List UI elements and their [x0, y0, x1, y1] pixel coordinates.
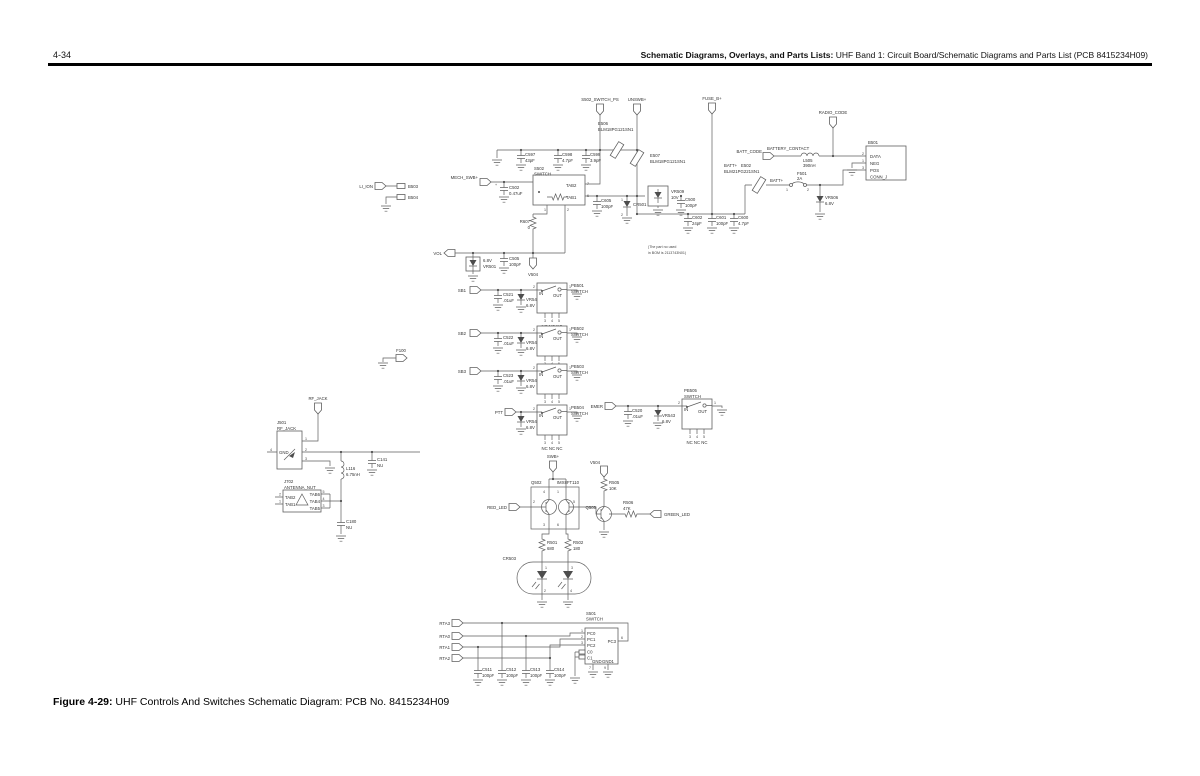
ground-symbol — [493, 348, 503, 353]
label-j702-tab1: TAB1 — [285, 502, 296, 507]
ground-symbol — [497, 680, 507, 685]
label-j702-val: ANTENNA_NUT — [284, 485, 316, 490]
label-c600-ref: C600 — [738, 215, 749, 220]
resistor-r501 — [539, 536, 545, 556]
label-r502-ref: R502 — [573, 540, 584, 545]
rf-jack-section: RF_JACK J501 RF_JACK GND 1 2 3 4 L116 6.… — [267, 396, 420, 541]
pin-5: 5 — [573, 500, 575, 504]
label-vr540-val: 6.8V — [526, 303, 535, 308]
figure-caption: Figure 4-29: UHF Controls And Switches S… — [53, 696, 449, 708]
label-j501-gnd: GND — [279, 450, 289, 455]
label-pb502-sw: SWITCH — [571, 332, 588, 337]
diode-cr501 — [624, 201, 631, 207]
pin-4: 4 — [570, 589, 572, 593]
label-q502-val: IMX8FT110 — [557, 480, 580, 485]
ground-symbol — [603, 672, 613, 677]
capacitor-c180 — [337, 518, 345, 530]
label-l116-val: 6.75nH — [346, 472, 360, 477]
ground-symbol — [499, 197, 509, 202]
zener-vr544 — [517, 413, 525, 427]
jumper-c0 — [579, 650, 585, 654]
note-line1: (The part no used — [648, 245, 676, 249]
ferrite-e502 — [752, 177, 766, 194]
port-flag-sb3 — [470, 368, 481, 375]
label-e502-val: BLM21PG221SN1 — [724, 169, 760, 174]
ground-symbol — [545, 680, 555, 685]
ground-symbol — [516, 350, 526, 355]
pin-3: 3 — [689, 435, 691, 439]
label-li-ion: LI_ION — [359, 184, 373, 189]
port-flag-sb2 — [470, 330, 481, 337]
ground-symbol — [336, 536, 346, 541]
port-flag-rta1 — [452, 644, 463, 651]
label-c602-val: 24pF — [692, 221, 702, 226]
s501-section: RTA3 RTA0 RTA1 RTA2 S501 SWITCH PC0 PC1 … — [439, 611, 628, 685]
zener-vr543 — [654, 407, 662, 421]
label-in: IN — [539, 413, 543, 418]
pin-2: 2 — [279, 493, 281, 497]
label-j702-tab2: TAB2 — [285, 495, 296, 500]
label-v504-led: V504 — [590, 460, 601, 465]
label-pb501-ref: PB501 — [571, 283, 585, 288]
zener-vr542 — [517, 372, 525, 386]
ground-symbol — [707, 228, 717, 233]
pin-7: 7 — [587, 182, 589, 186]
fuse-pin — [804, 184, 807, 187]
pin-2: 2 — [678, 401, 680, 405]
capacitor-c141 — [368, 456, 376, 468]
ground-symbol — [492, 160, 502, 165]
label-vr509-val: 10V — [671, 195, 679, 200]
port-flag-f100 — [396, 355, 407, 362]
port-flag-vol — [444, 250, 455, 257]
capacitor-c602 — [684, 214, 692, 226]
label-pb503-sw: SWITCH — [571, 370, 588, 375]
pin-2: 2 — [862, 152, 864, 156]
pin-1: 1 — [714, 401, 716, 405]
label-c505-ref: C505 — [509, 256, 520, 261]
ground-symbol — [516, 307, 526, 312]
resistor-r506 — [620, 511, 640, 517]
label-vr501-ref: VR501 — [483, 264, 497, 269]
port-flag-red-led — [509, 504, 520, 511]
label-f100: F100 — [396, 348, 406, 353]
label-rta3: RTA3 — [439, 621, 450, 626]
pin-5: 5 — [323, 490, 325, 494]
label-b501-neg: NEG — [870, 161, 880, 166]
label-s502-switch-ps: S502_SWITCH_PS — [581, 97, 619, 102]
capacitor-c521 — [494, 291, 502, 303]
label-r501-ref: R501 — [547, 540, 558, 545]
capacitor-c601 — [708, 214, 716, 226]
ground-symbol — [653, 210, 663, 215]
label-s501-gnd: GND — [592, 659, 602, 664]
label-pb504-ref: PB504 — [571, 405, 585, 410]
label-c597-val: 43pF — [525, 158, 535, 163]
port-flag-li-ion — [375, 183, 386, 190]
label-b501-data: DATA — [870, 154, 881, 159]
label-green-led: GREEN_LED — [664, 512, 690, 517]
label-rta0: RTA0 — [439, 634, 450, 639]
switch-pb505 — [682, 399, 712, 434]
label-j702-tab6: TAB6 — [310, 492, 321, 497]
pin-7: 7 — [589, 666, 591, 670]
label-pc2: PC2 — [587, 643, 596, 648]
label-e506-val: BLM18PG121SN1 — [598, 127, 634, 132]
switch-pb501 — [537, 283, 567, 318]
pin-3: 3 — [571, 566, 573, 570]
label-r505-val: 10K — [609, 486, 617, 491]
label-e507-val: BLM18PG121SN1 — [650, 159, 686, 164]
switch-pb503 — [537, 364, 567, 399]
inductor-l116 — [341, 461, 344, 479]
label-vol: VOL — [433, 251, 442, 256]
wires-f100 — [383, 358, 396, 362]
ground-symbol — [493, 386, 503, 391]
pin-1: 1 — [305, 437, 307, 441]
label-b501-connj: CONN_J — [870, 175, 887, 180]
label-sb3: SB3 — [458, 369, 467, 374]
label-c512-val: 100pF — [506, 673, 519, 678]
label-vr542-val: 6.8V — [526, 384, 535, 389]
label-c500-val: 100pF — [685, 203, 698, 208]
pin-3: 3 — [305, 457, 307, 461]
ground-symbol — [563, 602, 573, 607]
label-l505-val: 390nH — [803, 163, 816, 168]
label-tab2: TAB2 — [566, 183, 577, 188]
capacitor-c520 — [624, 407, 632, 419]
label-pb505-ref: PB505 — [684, 388, 698, 393]
label-r502-val: 180 — [573, 546, 581, 551]
label-f501-val: 2A — [797, 176, 802, 181]
label-c514-val: 100pF — [554, 673, 567, 678]
label-j501-val: RF_JACK — [277, 426, 296, 431]
wires — [520, 472, 650, 562]
pin-4: 4 — [323, 497, 325, 501]
label-vr506-val: 6.8V — [825, 201, 834, 206]
label-pc0: PC0 — [587, 631, 596, 636]
ground-symbol — [572, 294, 582, 299]
label-emer: EMER — [591, 404, 603, 409]
label-c505-val: 100pF — [509, 262, 522, 267]
label-b501: B501 — [868, 140, 879, 145]
label-c605-ref: C605 — [601, 198, 612, 203]
switch-pb502 — [537, 326, 567, 361]
label-q505: Q505 — [585, 505, 596, 510]
pin-2: 2 — [533, 366, 535, 370]
label-pb501-sw: SWITCH — [571, 289, 588, 294]
pin-4: 4 — [543, 490, 545, 494]
label-s501-gnd1: GND1 — [602, 659, 615, 664]
ground-symbol — [521, 680, 531, 685]
capacitor-c600 — [730, 214, 738, 226]
pin-2: 2 — [621, 213, 623, 217]
pin-2: 2 — [807, 188, 809, 192]
label-in: IN — [539, 372, 543, 377]
port-flag-rta0 — [452, 633, 463, 640]
ground-symbol — [717, 410, 727, 415]
ground-symbol — [516, 388, 526, 393]
label-e507-ref: E507 — [650, 153, 661, 158]
ground-symbol — [367, 470, 377, 475]
label-c0: C0 — [587, 650, 593, 655]
ground-symbol — [378, 363, 388, 368]
label-in: IN — [684, 407, 688, 412]
label-s502-ref: S502 — [534, 166, 545, 171]
label-battery-contact: BATTERY_CONTACT — [767, 146, 810, 151]
ground-symbol — [676, 210, 686, 215]
label-out: OUT — [553, 374, 562, 379]
label-nc: NC NC NC — [541, 446, 562, 451]
label-swb: SWB+ — [547, 454, 560, 459]
resistor-r502 — [565, 536, 571, 556]
label-c520-val: .01uF — [632, 414, 643, 419]
label-c141-val: NU — [377, 463, 383, 468]
pin-1: 1 — [621, 198, 623, 202]
schematic-canvas: S502_SWITCH_PS UNSWB+ FUSE_B+ RADIO_CODE… — [0, 0, 1200, 776]
label-c523-ref: C523 — [503, 373, 514, 378]
port-flag-unswb — [634, 104, 641, 115]
label-c522-ref: C522 — [503, 335, 514, 340]
label-c141-ref: C141 — [377, 457, 388, 462]
port-flag-s502-switch-ps — [597, 104, 604, 115]
power-switch-section: LI_ION B503 B504 MECH_SWB+ + C502 0.47uF… — [359, 166, 589, 281]
port-flag-rf-jack — [315, 403, 322, 414]
label-pb502-ref: PB502 — [571, 326, 585, 331]
pin-2: 2 — [533, 407, 535, 411]
document-page: 4-34 Schematic Diagrams, Overlays, and P… — [0, 0, 1200, 776]
zener-vr506 — [816, 193, 824, 207]
label-c514-ref: C514 — [554, 667, 565, 672]
ground-symbol — [537, 602, 547, 607]
label-fuse-b: FUSE_B+ — [702, 96, 722, 101]
pin-5: 5 — [703, 435, 705, 439]
pin-1: 1 — [544, 208, 546, 212]
ground-symbol — [516, 429, 526, 434]
capacitor-c597 — [517, 151, 525, 163]
label-out: OUT — [553, 415, 562, 420]
label-s501-sw: SWITCH — [586, 617, 603, 622]
label-rf-jack-port: RF_JACK — [308, 396, 327, 401]
led-section: SWB+ Q502 IMX8FT110 4 1 2 5 3 6 RED_LED … — [487, 454, 690, 607]
capacitor-c599 — [582, 151, 590, 163]
pin-6: 6 — [587, 194, 589, 198]
ground-symbol — [381, 206, 391, 211]
label-unswb: UNSWB+ — [628, 97, 647, 102]
ground-symbol — [473, 680, 483, 685]
label-j702-ref: J702 — [284, 479, 294, 484]
port-flag-green-led — [650, 511, 661, 518]
label-c520-ref: C520 — [632, 408, 643, 413]
label-e506-ref: E506 — [598, 121, 609, 126]
capacitor-c514 — [546, 666, 554, 678]
pin-3: 3 — [862, 166, 864, 170]
ground-symbol — [572, 337, 582, 342]
ground-symbol — [588, 672, 598, 677]
resistor-r505 — [601, 476, 607, 496]
pin-b503 — [397, 184, 405, 189]
label-r506-val: 47K — [623, 506, 631, 511]
label-j702-tab5: TAB5 — [310, 506, 321, 511]
jumper-c1 — [579, 655, 585, 659]
label-c521-ref: C521 — [503, 292, 514, 297]
pin-4: 4 — [551, 441, 553, 445]
ground-symbol — [729, 228, 739, 233]
ground-symbol — [581, 165, 591, 170]
label-c600-val: 4.7pF — [738, 221, 749, 226]
label-c598-ref: C598 — [562, 152, 573, 157]
label-c513-ref: C513 — [530, 667, 541, 672]
label-c502-ref: C502 — [509, 185, 520, 190]
label-r505-ref: R505 — [609, 480, 620, 485]
ground-symbol — [570, 678, 580, 683]
ground-symbol — [572, 416, 582, 421]
label-c601-ref: C601 — [716, 215, 727, 220]
pin-3: 3 — [581, 641, 583, 645]
label-ptt: PTT — [495, 410, 503, 415]
label-r501-val: 680 — [547, 546, 555, 551]
label-cr503: CR503 — [503, 556, 517, 561]
label-c599-val: 3.9pF — [590, 158, 601, 163]
ground-symbol — [516, 165, 526, 170]
label-c521-val: .01uF — [503, 298, 514, 303]
pin-1: 1 — [862, 159, 864, 163]
pin-3: 3 — [543, 523, 545, 527]
note-line2: in BOM is 2113743N01) — [648, 251, 686, 255]
label-nc: NC NC NC — [686, 440, 707, 445]
label-rta1: RTA1 — [439, 645, 450, 650]
ground-symbol — [623, 421, 633, 426]
ground-symbol — [815, 214, 825, 219]
ferrite-e507 — [630, 150, 644, 167]
label-out: OUT — [553, 293, 562, 298]
zener-vr540 — [517, 291, 525, 305]
pin-9: 9 — [604, 666, 606, 670]
label-vr543-ref: VR543 — [662, 413, 676, 418]
label-batt-code: BATT_CODE — [737, 149, 763, 154]
capacitor-c522 — [494, 334, 502, 346]
label-in: IN — [539, 291, 543, 296]
ground-symbol — [599, 532, 609, 537]
label-j702-tab4: TAB4 — [310, 499, 321, 504]
label-cr501: CR501 — [633, 202, 647, 207]
contact-dot — [538, 191, 540, 193]
pin-1: 1 — [557, 490, 559, 494]
resistor-r607 — [530, 214, 536, 234]
pin-6: 6 — [557, 523, 559, 527]
label-vr543-val: 6.8V — [662, 419, 671, 424]
capacitor-c523 — [494, 372, 502, 384]
testpoint-flag-v504 — [530, 258, 537, 269]
pin-4: 4 — [696, 435, 698, 439]
port-flag-rta2 — [452, 655, 463, 662]
port-flag-radio-code — [830, 117, 837, 128]
pin-b504 — [397, 195, 405, 200]
port-flag-mech-swb — [480, 179, 491, 186]
label-in: IN — [539, 334, 543, 339]
label-tab1: TAB1 — [566, 195, 577, 200]
label-c513-val: 100pF — [530, 673, 543, 678]
figure-caption-text: UHF Controls And Switches Schematic Diag… — [113, 696, 450, 708]
ground-symbol — [592, 211, 602, 216]
label-c602-ref: C602 — [692, 215, 703, 220]
label-v504: V504 — [528, 272, 539, 277]
label-r506-ref: R506 — [623, 500, 634, 505]
label-l116-ref: L116 — [346, 466, 356, 471]
fuse-f501-arc — [791, 182, 805, 185]
q502-box — [531, 487, 579, 529]
pin-2: 2 — [305, 448, 307, 452]
pin-5: 5 — [558, 319, 560, 323]
label-batt-plus: BATT+ — [724, 163, 738, 168]
label-c511-ref: C511 — [482, 667, 493, 672]
pin-6: 6 — [621, 636, 623, 640]
port-flag-emer — [605, 403, 616, 410]
ground-symbol — [683, 228, 693, 233]
label-vr509-ref: VR509 — [671, 189, 685, 194]
label-batt-plus-2: BATT+ — [770, 178, 784, 183]
label-c597-ref: C597 — [525, 152, 536, 157]
label-s501-ref: S501 — [586, 611, 597, 616]
ground-symbol — [572, 375, 582, 380]
capacitor-c511 — [474, 666, 482, 678]
port-flag-ptt — [505, 409, 516, 416]
pin-2: 2 — [581, 635, 583, 639]
label-vr544-val: 6.8V — [526, 425, 535, 430]
pin-3: 3 — [544, 319, 546, 323]
label-vr501-val: 6.8V — [483, 258, 492, 263]
pin-2: 2 — [544, 589, 546, 593]
capacitor-c505 — [500, 254, 508, 266]
label-c512-ref: C512 — [506, 667, 517, 672]
label-pb504-sw: SWITCH — [571, 411, 588, 416]
label-c523-val: .01uF — [503, 379, 514, 384]
pin-2: 2 — [533, 285, 535, 289]
pin-5: 5 — [558, 441, 560, 445]
capacitor-c513 — [522, 666, 530, 678]
inductor-l505 — [801, 153, 819, 156]
capacitor-c605 — [593, 197, 601, 209]
pin-3: 3 — [544, 441, 546, 445]
label-out: OUT — [553, 336, 562, 341]
label-c180-val: NU — [346, 525, 352, 530]
label-c601-val: 100pF — [716, 221, 729, 226]
label-c599-ref: C599 — [590, 152, 601, 157]
label-mech-swb: MECH_SWB+ — [451, 175, 479, 180]
pin-2: 2 — [533, 328, 535, 332]
pin-1: 1 — [786, 188, 788, 192]
pushbutton-section: SB1 C521 .01uF VR540 6.8V 2 IN OUT 1 3 4… — [378, 283, 727, 451]
label-out: OUT — [698, 409, 707, 414]
capacitor-c598 — [554, 151, 562, 163]
label-c511-val: 100pF — [482, 673, 495, 678]
label-e502-ref: E502 — [741, 163, 752, 168]
label-c180-ref: C180 — [346, 519, 357, 524]
ground-symbol — [847, 170, 857, 175]
fuse-pin — [790, 184, 793, 187]
label-vr541-val: 6.8V — [526, 346, 535, 351]
label-pc3: PC3 — [608, 639, 617, 644]
label-c522-val: .01uF — [503, 341, 514, 346]
figure-caption-label: Figure 4-29: — [53, 696, 113, 708]
label-j501-ref: J501 — [277, 420, 287, 425]
pin-2: 2 — [567, 208, 569, 212]
label-c500-ref: C500 — [685, 197, 696, 202]
label-c605-val: 100pF — [601, 204, 614, 209]
pin-4: 4 — [270, 448, 272, 452]
label-c502-val: 0.47uF — [509, 191, 523, 196]
pin-3: 3 — [323, 504, 325, 508]
